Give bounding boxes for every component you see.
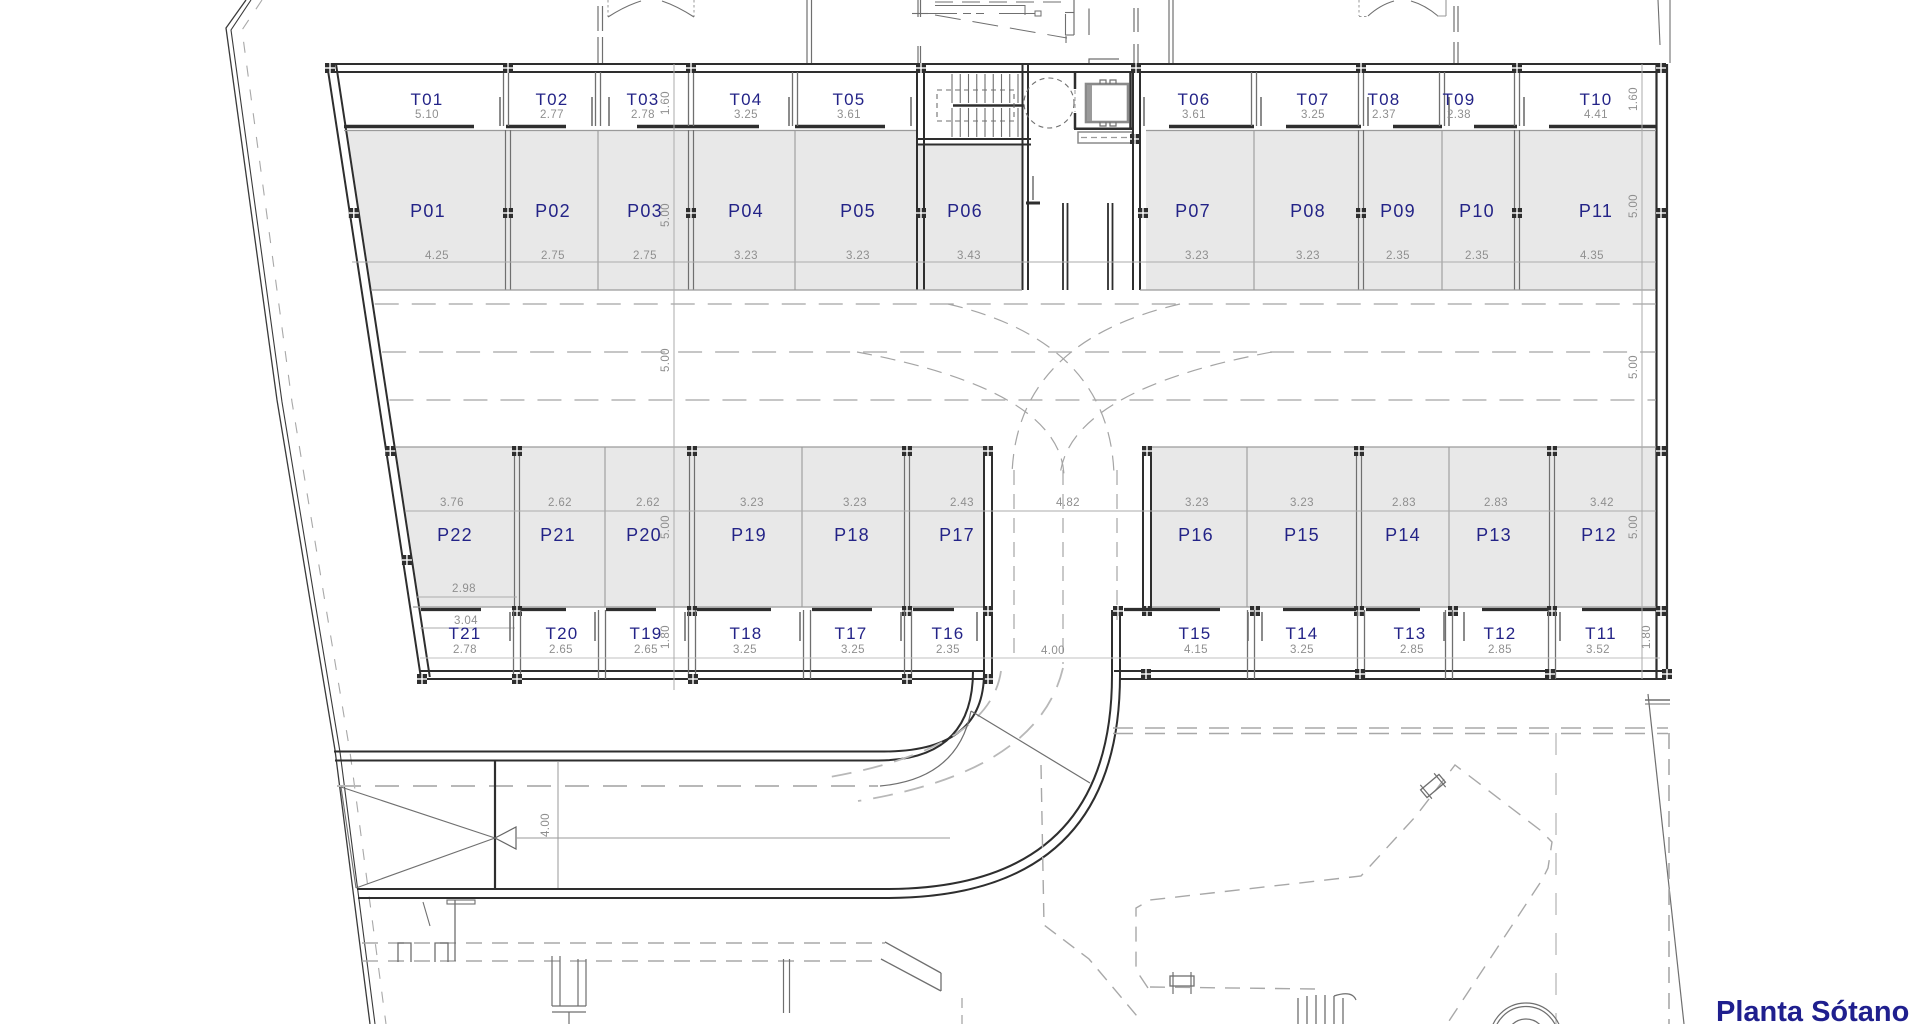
svg-text:2.35: 2.35 bbox=[1386, 250, 1410, 262]
svg-text:P22: P22 bbox=[437, 525, 473, 545]
svg-text:P09: P09 bbox=[1380, 201, 1416, 221]
svg-text:P11: P11 bbox=[1579, 201, 1613, 221]
svg-text:1.80: 1.80 bbox=[1641, 625, 1653, 649]
svg-text:3.23: 3.23 bbox=[1185, 497, 1209, 509]
svg-text:2.65: 2.65 bbox=[549, 644, 573, 656]
svg-text:3.23: 3.23 bbox=[734, 250, 758, 262]
svg-text:3.23: 3.23 bbox=[1185, 250, 1209, 262]
svg-text:2.65: 2.65 bbox=[634, 644, 658, 656]
svg-text:P05: P05 bbox=[840, 201, 876, 221]
svg-text:2.83: 2.83 bbox=[1484, 497, 1508, 509]
svg-text:2.98: 2.98 bbox=[452, 583, 476, 595]
svg-text:5.00: 5.00 bbox=[660, 348, 672, 372]
svg-text:4.15: 4.15 bbox=[1184, 644, 1208, 656]
svg-text:3.42: 3.42 bbox=[1590, 497, 1614, 509]
svg-text:T10: T10 bbox=[1580, 90, 1613, 109]
svg-text:T20: T20 bbox=[546, 624, 579, 643]
svg-text:2.75: 2.75 bbox=[633, 250, 657, 262]
svg-text:P19: P19 bbox=[731, 525, 767, 545]
svg-text:T07: T07 bbox=[1297, 90, 1330, 109]
svg-text:T21: T21 bbox=[449, 624, 482, 643]
svg-text:Planta Sótano: Planta Sótano bbox=[1716, 996, 1909, 1024]
svg-text:5.00: 5.00 bbox=[1628, 515, 1640, 539]
svg-text:2.78: 2.78 bbox=[631, 109, 655, 121]
svg-text:T11: T11 bbox=[1585, 624, 1617, 643]
svg-text:5.00: 5.00 bbox=[660, 203, 672, 227]
svg-text:T17: T17 bbox=[835, 624, 868, 643]
svg-text:3.25: 3.25 bbox=[1290, 644, 1314, 656]
svg-text:3.76: 3.76 bbox=[440, 497, 464, 509]
svg-text:P06: P06 bbox=[947, 201, 983, 221]
svg-text:3.61: 3.61 bbox=[837, 109, 861, 121]
svg-text:P15: P15 bbox=[1284, 525, 1320, 545]
svg-text:2.38: 2.38 bbox=[1447, 109, 1471, 121]
svg-text:P21: P21 bbox=[540, 525, 576, 545]
svg-text:1.80: 1.80 bbox=[660, 625, 672, 649]
svg-text:T14: T14 bbox=[1286, 624, 1319, 643]
svg-text:2.77: 2.77 bbox=[540, 109, 564, 121]
svg-text:T13: T13 bbox=[1394, 624, 1427, 643]
svg-text:4.82: 4.82 bbox=[1056, 497, 1080, 509]
svg-text:T02: T02 bbox=[536, 90, 569, 109]
svg-text:2.78: 2.78 bbox=[453, 644, 477, 656]
svg-text:P03: P03 bbox=[627, 201, 663, 221]
svg-text:1.60: 1.60 bbox=[1628, 87, 1640, 111]
svg-text:T18: T18 bbox=[730, 624, 763, 643]
svg-text:3.23: 3.23 bbox=[1290, 497, 1314, 509]
svg-text:T19: T19 bbox=[630, 624, 663, 643]
svg-text:2.85: 2.85 bbox=[1400, 644, 1424, 656]
svg-text:3.25: 3.25 bbox=[734, 109, 758, 121]
svg-text:5.10: 5.10 bbox=[415, 109, 439, 121]
svg-text:2.35: 2.35 bbox=[936, 644, 960, 656]
svg-text:2.75: 2.75 bbox=[541, 250, 565, 262]
svg-text:P08: P08 bbox=[1290, 201, 1326, 221]
svg-text:T03: T03 bbox=[627, 90, 660, 109]
svg-text:2.35: 2.35 bbox=[1465, 250, 1489, 262]
svg-text:3.52: 3.52 bbox=[1586, 644, 1610, 656]
svg-text:P10: P10 bbox=[1459, 201, 1495, 221]
svg-text:3.25: 3.25 bbox=[1301, 109, 1325, 121]
svg-text:P20: P20 bbox=[626, 525, 662, 545]
svg-text:2.43: 2.43 bbox=[950, 497, 974, 509]
svg-text:5.00: 5.00 bbox=[660, 515, 672, 539]
svg-text:P12: P12 bbox=[1581, 525, 1617, 545]
svg-text:T09: T09 bbox=[1443, 90, 1476, 109]
svg-text:3.25: 3.25 bbox=[733, 644, 757, 656]
svg-text:P13: P13 bbox=[1476, 525, 1512, 545]
svg-text:P01: P01 bbox=[410, 201, 446, 221]
svg-text:4.00: 4.00 bbox=[1041, 645, 1065, 657]
svg-text:2.62: 2.62 bbox=[636, 497, 660, 509]
svg-text:T01: T01 bbox=[411, 90, 444, 109]
svg-text:T15: T15 bbox=[1179, 624, 1212, 643]
svg-text:3.61: 3.61 bbox=[1182, 109, 1206, 121]
svg-text:P14: P14 bbox=[1385, 525, 1421, 545]
svg-text:P04: P04 bbox=[728, 201, 764, 221]
svg-text:5.00: 5.00 bbox=[1628, 194, 1640, 218]
svg-text:1.60: 1.60 bbox=[660, 91, 672, 115]
svg-text:P17: P17 bbox=[939, 525, 975, 545]
svg-text:T06: T06 bbox=[1178, 90, 1211, 109]
svg-text:P07: P07 bbox=[1175, 201, 1211, 221]
svg-text:2.83: 2.83 bbox=[1392, 497, 1416, 509]
svg-text:P16: P16 bbox=[1178, 525, 1214, 545]
svg-text:2.85: 2.85 bbox=[1488, 644, 1512, 656]
svg-text:3.23: 3.23 bbox=[740, 497, 764, 509]
svg-text:2.62: 2.62 bbox=[548, 497, 572, 509]
svg-text:3.43: 3.43 bbox=[957, 250, 981, 262]
svg-text:3.23: 3.23 bbox=[846, 250, 870, 262]
svg-text:3.25: 3.25 bbox=[841, 644, 865, 656]
svg-text:4.41: 4.41 bbox=[1584, 109, 1608, 121]
svg-text:P18: P18 bbox=[834, 525, 870, 545]
svg-text:T12: T12 bbox=[1484, 624, 1517, 643]
svg-text:P02: P02 bbox=[535, 201, 571, 221]
svg-text:3.23: 3.23 bbox=[843, 497, 867, 509]
svg-text:T04: T04 bbox=[730, 90, 763, 109]
svg-text:5.00: 5.00 bbox=[1628, 355, 1640, 379]
svg-text:2.37: 2.37 bbox=[1372, 109, 1396, 121]
svg-text:3.23: 3.23 bbox=[1296, 250, 1320, 262]
svg-text:4.00: 4.00 bbox=[540, 813, 552, 837]
svg-text:T05: T05 bbox=[833, 90, 866, 109]
svg-text:T08: T08 bbox=[1368, 90, 1401, 109]
svg-text:4.35: 4.35 bbox=[1580, 250, 1604, 262]
svg-text:T16: T16 bbox=[932, 624, 965, 643]
svg-text:4.25: 4.25 bbox=[425, 250, 449, 262]
